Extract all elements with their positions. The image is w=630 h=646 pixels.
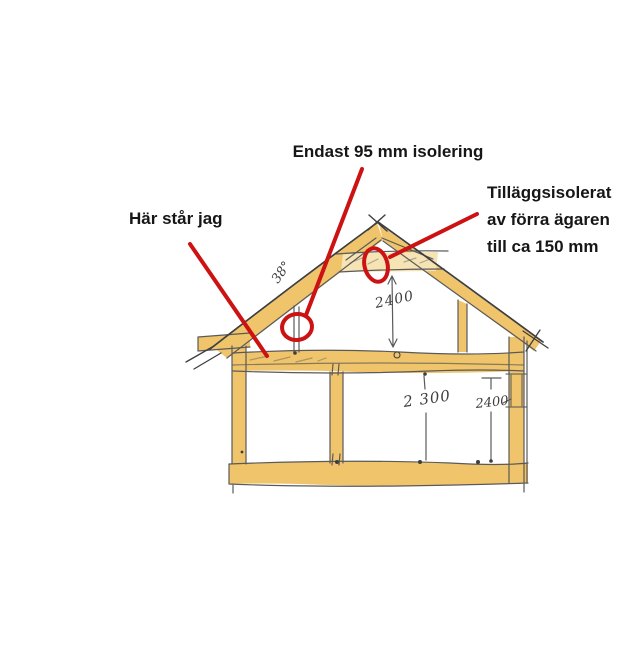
dim-line-ground-right	[482, 378, 511, 460]
interior-post	[330, 372, 343, 463]
label-added-insulation-line2: av förra ägaren	[487, 206, 611, 233]
roof-angle-label: 38°	[269, 259, 295, 286]
dim-line-ground	[424, 376, 426, 460]
house-sketch-canvas: 38° 2400 2 300 2400	[0, 0, 630, 646]
dim-ground-label: 2 300	[401, 386, 452, 411]
label-added-insulation-line1: Tilläggsisolerat	[487, 179, 611, 206]
dim-line-attic	[388, 276, 397, 347]
dim-ground-right-label: 2400	[474, 394, 509, 412]
label-here-i-stand: Här står jag	[129, 208, 223, 229]
house-section-figure: 38° 2400 2 300 2400 Endast 95 mm isoleri…	[0, 0, 630, 646]
dim-attic-label: 2400	[373, 288, 416, 312]
label-added-insulation: Tilläggsisolerat av förra ägaren till ca…	[487, 179, 611, 260]
right-attic-post	[458, 300, 467, 352]
circle-insulation-95	[280, 312, 313, 342]
label-added-insulation-line3: till ca 150 mm	[487, 233, 611, 260]
label-insulation-95: Endast 95 mm isolering	[287, 141, 489, 162]
